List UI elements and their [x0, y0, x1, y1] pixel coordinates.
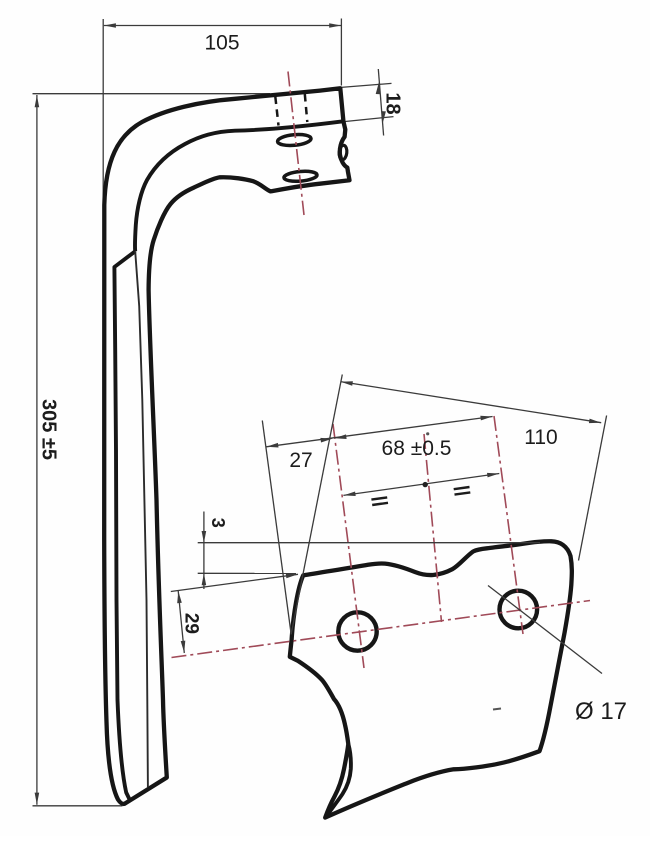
svg-text:68 ±0.5: 68 ±0.5 — [382, 437, 452, 460]
svg-text:105: 105 — [204, 32, 239, 55]
svg-text:18: 18 — [382, 92, 404, 114]
svg-text:305 ±5: 305 ±5 — [38, 399, 60, 460]
svg-text:29: 29 — [180, 613, 201, 634]
svg-text:110: 110 — [524, 426, 557, 449]
svg-text:Ø 17: Ø 17 — [575, 698, 627, 725]
svg-text:3: 3 — [208, 518, 228, 528]
svg-text:27: 27 — [289, 449, 312, 472]
